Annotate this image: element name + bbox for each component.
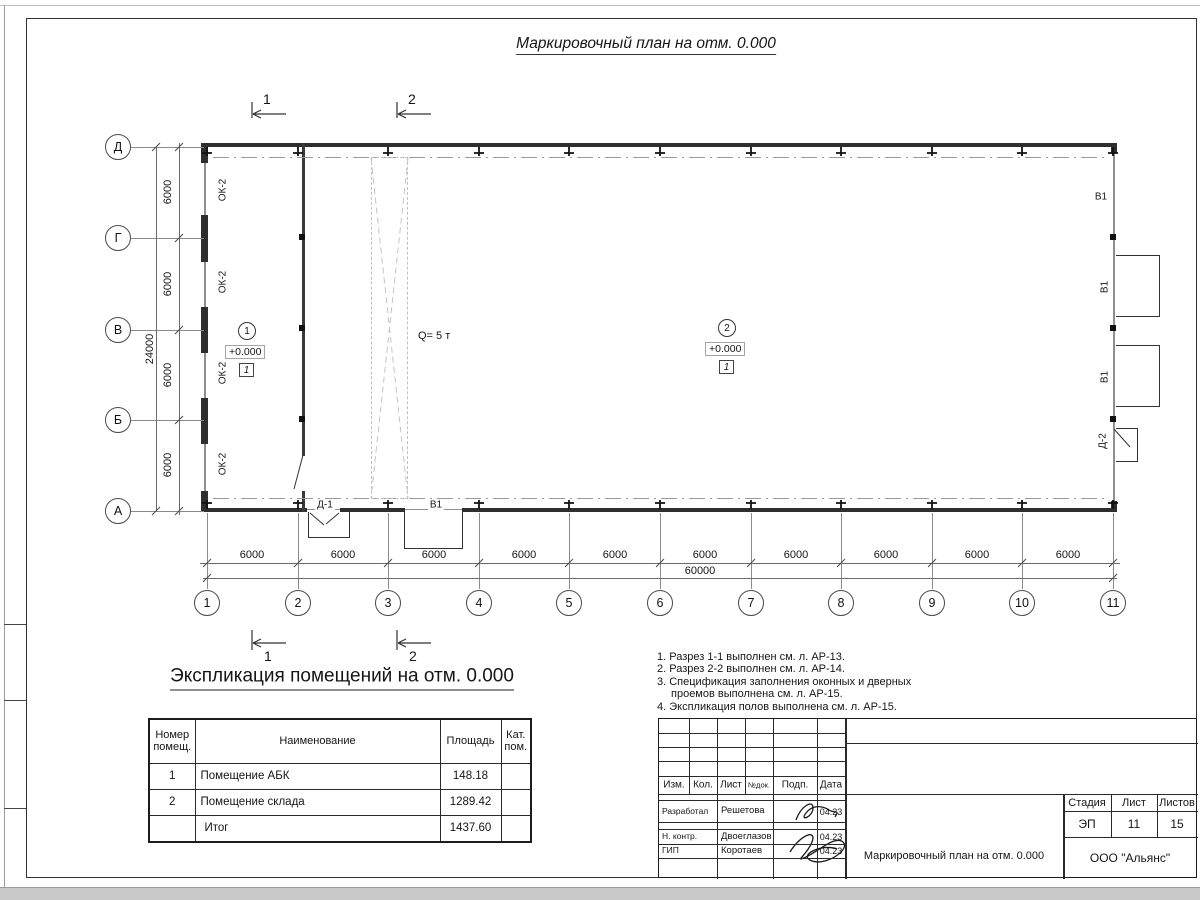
dim-label: 6000 [965, 549, 989, 561]
page-bottom-strip [0, 887, 1200, 900]
rev-header-list: Лист [720, 780, 742, 791]
axis-label: 5 [566, 596, 573, 610]
crane-zone [371, 157, 408, 499]
axis-leader-row-a [131, 511, 204, 512]
axis-bubble-row-g: Г [105, 225, 131, 251]
table-row: Итог 1437.60 [149, 815, 531, 842]
stamp-doc-title: Маркировочный план на отм. 0.000 [864, 850, 1044, 862]
signer-date: 04.23 [820, 807, 843, 817]
dim-label: 6000 [603, 549, 627, 561]
room-number: 2 [724, 323, 730, 334]
axis-bubble-col-1: 1 [194, 590, 220, 616]
window-label-ok2: ОК-2 [218, 271, 229, 294]
door-label-d2: Д-2 [1098, 433, 1109, 449]
cell-name: Помещение АБК [195, 763, 440, 789]
door-label-d1: Д-1 [315, 500, 335, 511]
dim-label: 6000 [162, 272, 174, 296]
window-label-ok2: ОК-2 [218, 179, 229, 202]
rev-header-izm: Изм. [663, 780, 684, 791]
axis-label: 2 [295, 596, 302, 610]
explication-table: Номер помещ. Наименование Площадь Кат. п… [148, 718, 532, 843]
cell-number [149, 815, 195, 842]
margin-divider-1 [4, 624, 26, 625]
section-mark-2-bottom: 2 [409, 648, 417, 664]
sheets-total-header: Листов [1159, 797, 1195, 809]
stamp-line [717, 719, 718, 879]
room-number: 1 [244, 326, 250, 337]
dim-label: 6000 [162, 453, 174, 477]
dim-label: 6000 [162, 363, 174, 387]
stamp-line [659, 776, 845, 777]
cell-area: 1437.60 [440, 815, 501, 842]
left-pier-5 [201, 491, 208, 512]
bottom-wall-seg3 [462, 508, 1117, 512]
axis-label: 9 [929, 596, 936, 610]
axis-leader-row-v [131, 330, 204, 331]
sheet-number: 11 [1128, 817, 1140, 831]
cell-cat [501, 815, 531, 842]
stamp-line [1063, 811, 1198, 812]
axis-bubble-col-11: 11 [1100, 590, 1126, 616]
room-2-elevation: +0.000 [705, 342, 745, 356]
dim-line-col-total [203, 578, 1117, 579]
axis-bubble-col-10: 10 [1009, 590, 1035, 616]
rev-header-ndok: №док. [748, 781, 770, 790]
right-wall-line [1113, 143, 1115, 512]
dim-label: 6000 [512, 549, 536, 561]
axis-bubble-col-7: 7 [738, 590, 764, 616]
cell-name: Итог [195, 815, 440, 842]
signer-role: Разработал [662, 806, 708, 816]
note-line-4: 4. Экспликация полов выполнена см. л. АР… [657, 701, 987, 713]
partition-wall-stub [302, 491, 305, 512]
axis-label: 4 [476, 596, 483, 610]
axis-label: В [114, 323, 122, 337]
col-header-area: Площадь [440, 719, 501, 763]
stage-value: ЭП [1078, 817, 1095, 831]
axis-bubble-row-a: А [105, 498, 131, 524]
platform-v1-right-1 [1116, 255, 1160, 317]
axis-label: 11 [1107, 596, 1120, 610]
axis-label: Г [115, 231, 122, 245]
right-wall-corner-top [1111, 143, 1117, 153]
sheet-edge-top [0, 5, 1200, 6]
signer-name: Двоеглазов [721, 831, 772, 842]
axis-label: А [114, 504, 122, 518]
floor-type-value: 1 [724, 362, 730, 373]
stamp-line [1157, 794, 1158, 837]
axis-label: 1 [204, 596, 211, 610]
stamp-line [845, 743, 1198, 744]
dim-label: 6000 [693, 549, 717, 561]
stamp-line [659, 829, 845, 830]
axis-bubble-col-9: 9 [919, 590, 945, 616]
platform-v1-right-2 [1116, 345, 1160, 407]
col-header-cat: Кат. пом. [501, 719, 531, 763]
axis-label: 6 [657, 596, 664, 610]
gate-label-v1-right-1: В1 [1100, 281, 1111, 293]
sheets-total: 15 [1170, 817, 1183, 831]
gate-label-v1-top: В1 [1095, 192, 1107, 203]
axis-label: Б [114, 413, 122, 427]
axis-label: Д [114, 140, 122, 154]
rev-header-data: Дата [820, 780, 842, 791]
stamp-line [659, 858, 845, 859]
stamp-line [659, 794, 1198, 795]
partition-wall [302, 143, 305, 456]
notes-block: 1. Разрез 1-1 выполнен см. л. АР-13. 2. … [657, 651, 987, 713]
drawing-sheet: Маркировочный план на отм. 0.000 [0, 0, 1200, 900]
cell-number: 1 [149, 763, 195, 789]
rev-header-podp: Подп. [782, 780, 809, 791]
axis-bubble-col-3: 3 [375, 590, 401, 616]
dim-total-label: 60000 [685, 565, 716, 577]
col-header-name: Наименование [195, 719, 440, 763]
crane-rail-top [213, 157, 1108, 158]
dim-label: 6000 [162, 180, 174, 204]
window-label-ok2: ОК-2 [218, 362, 229, 385]
stamp-line [1111, 794, 1112, 837]
stamp-line [659, 800, 845, 801]
axis-bubble-col-6: 6 [647, 590, 673, 616]
axis-bubble-row-b: Б [105, 407, 131, 433]
col-header-number: Номер помещ. [149, 719, 195, 763]
cell-cat [501, 763, 531, 789]
axis-label: 8 [838, 596, 845, 610]
cell-area: 148.18 [440, 763, 501, 789]
axis-bubble-row-v: В [105, 317, 131, 343]
signer-name: Решетова [721, 805, 765, 816]
plan-title: Маркировочный план на отм. 0.000 [516, 35, 776, 55]
dim-label: 6000 [240, 549, 264, 561]
note-line-2: 2. Разрез 2-2 выполнен см. л. АР-14. [657, 663, 987, 675]
top-wall [203, 143, 1117, 147]
signer-role: Н. контр. [662, 831, 697, 841]
section-mark-1-top: 1 [263, 91, 271, 107]
dim-label: 6000 [874, 549, 898, 561]
cell-number: 2 [149, 789, 195, 815]
title-block: Изм. Кол. Лист №док. Подп. Дата Разработ… [658, 718, 1197, 878]
axis-leader-row-d [131, 147, 204, 148]
note-line-3: 3. Спецификация заполнения оконных и две… [657, 676, 987, 688]
elevation-value: +0.000 [229, 346, 261, 358]
axis-bubble-col-5: 5 [556, 590, 582, 616]
axis-label: 7 [748, 596, 755, 610]
stamp-line [659, 747, 845, 748]
axis-label: 3 [385, 596, 392, 610]
porch-d2 [1116, 428, 1138, 462]
axis-bubble-row-d: Д [105, 134, 131, 160]
crane-rail-bottom [213, 498, 1108, 499]
section-mark-2-top: 2 [408, 91, 416, 107]
note-line-3b: проемов выполнена см. л. АР-15. [657, 688, 987, 700]
section-mark-1-bottom: 1 [264, 648, 272, 664]
table-row: 2 Помещение склада 1289.42 [149, 789, 531, 815]
note-line-1: 1. Разрез 1-1 выполнен см. л. АР-13. [657, 651, 987, 663]
sheet-edge-left [4, 5, 5, 887]
floor-type-value: 1 [244, 365, 250, 376]
left-pier-4 [201, 398, 208, 444]
stamp-line [689, 719, 690, 794]
signer-date: 04.23 [820, 832, 843, 842]
table-header-row: Номер помещ. Наименование Площадь Кат. п… [149, 719, 531, 763]
porch-v1-bottom [404, 512, 463, 549]
axis-leader-row-b [131, 420, 204, 421]
table-row: 1 Помещение АБК 148.18 [149, 763, 531, 789]
crane-capacity-label: Q= 5 т [418, 330, 450, 342]
sheet-header: Лист [1122, 797, 1146, 809]
dim-label: 6000 [1056, 549, 1080, 561]
dim-line-row-total [156, 147, 157, 511]
elevation-value: +0.000 [709, 343, 741, 355]
dim-label: 6000 [331, 549, 355, 561]
explication-title: Экспликация помещений на отм. 0.000 [170, 666, 514, 691]
stamp-line [659, 733, 845, 734]
room-1-elevation: +0.000 [225, 345, 265, 359]
gate-label-v1-bottom: В1 [428, 500, 444, 511]
signer-name: Коротаев [721, 845, 762, 856]
room-2-floor-type: 1 [719, 360, 734, 374]
rev-header-kol: Кол. [693, 780, 713, 791]
dim-total-label: 24000 [144, 334, 156, 365]
left-pier-1 [201, 143, 208, 163]
cell-cat [501, 789, 531, 815]
stamp-line [745, 719, 746, 794]
window-label-ok2: ОК-2 [218, 453, 229, 476]
cell-name: Помещение склада [195, 789, 440, 815]
stamp-line [659, 761, 845, 762]
dim-label: 6000 [784, 549, 808, 561]
dim-line-row-chain [179, 143, 180, 515]
stamp-company: ООО "Альянс" [1090, 851, 1170, 865]
signer-role: ГИП [662, 845, 679, 855]
margin-divider-3 [4, 808, 26, 809]
dim-label: 6000 [422, 549, 446, 561]
stamp-line [817, 719, 818, 879]
cell-area: 1289.42 [440, 789, 501, 815]
stamp-line [1063, 837, 1198, 838]
signer-date: 04.23 [820, 846, 843, 856]
room-2-number: 2 [718, 319, 736, 337]
dim-line-col-chain [200, 563, 1120, 564]
axis-leader-row-g [131, 238, 204, 239]
gate-label-v1-right-2: В1 [1100, 371, 1111, 383]
stage-header: Стадия [1068, 797, 1106, 809]
bottom-wall-seg1 [203, 508, 307, 512]
margin-divider-2 [4, 700, 26, 701]
axis-bubble-col-8: 8 [828, 590, 854, 616]
axis-label: 10 [1015, 596, 1029, 610]
room-1-floor-type: 1 [239, 363, 254, 377]
stamp-line [659, 822, 845, 823]
right-wall-corner-bottom [1111, 501, 1117, 512]
stamp-line [773, 719, 774, 879]
porch-d1 [308, 512, 350, 538]
room-1-number: 1 [238, 322, 256, 340]
axis-bubble-col-2: 2 [285, 590, 311, 616]
axis-bubble-col-4: 4 [466, 590, 492, 616]
